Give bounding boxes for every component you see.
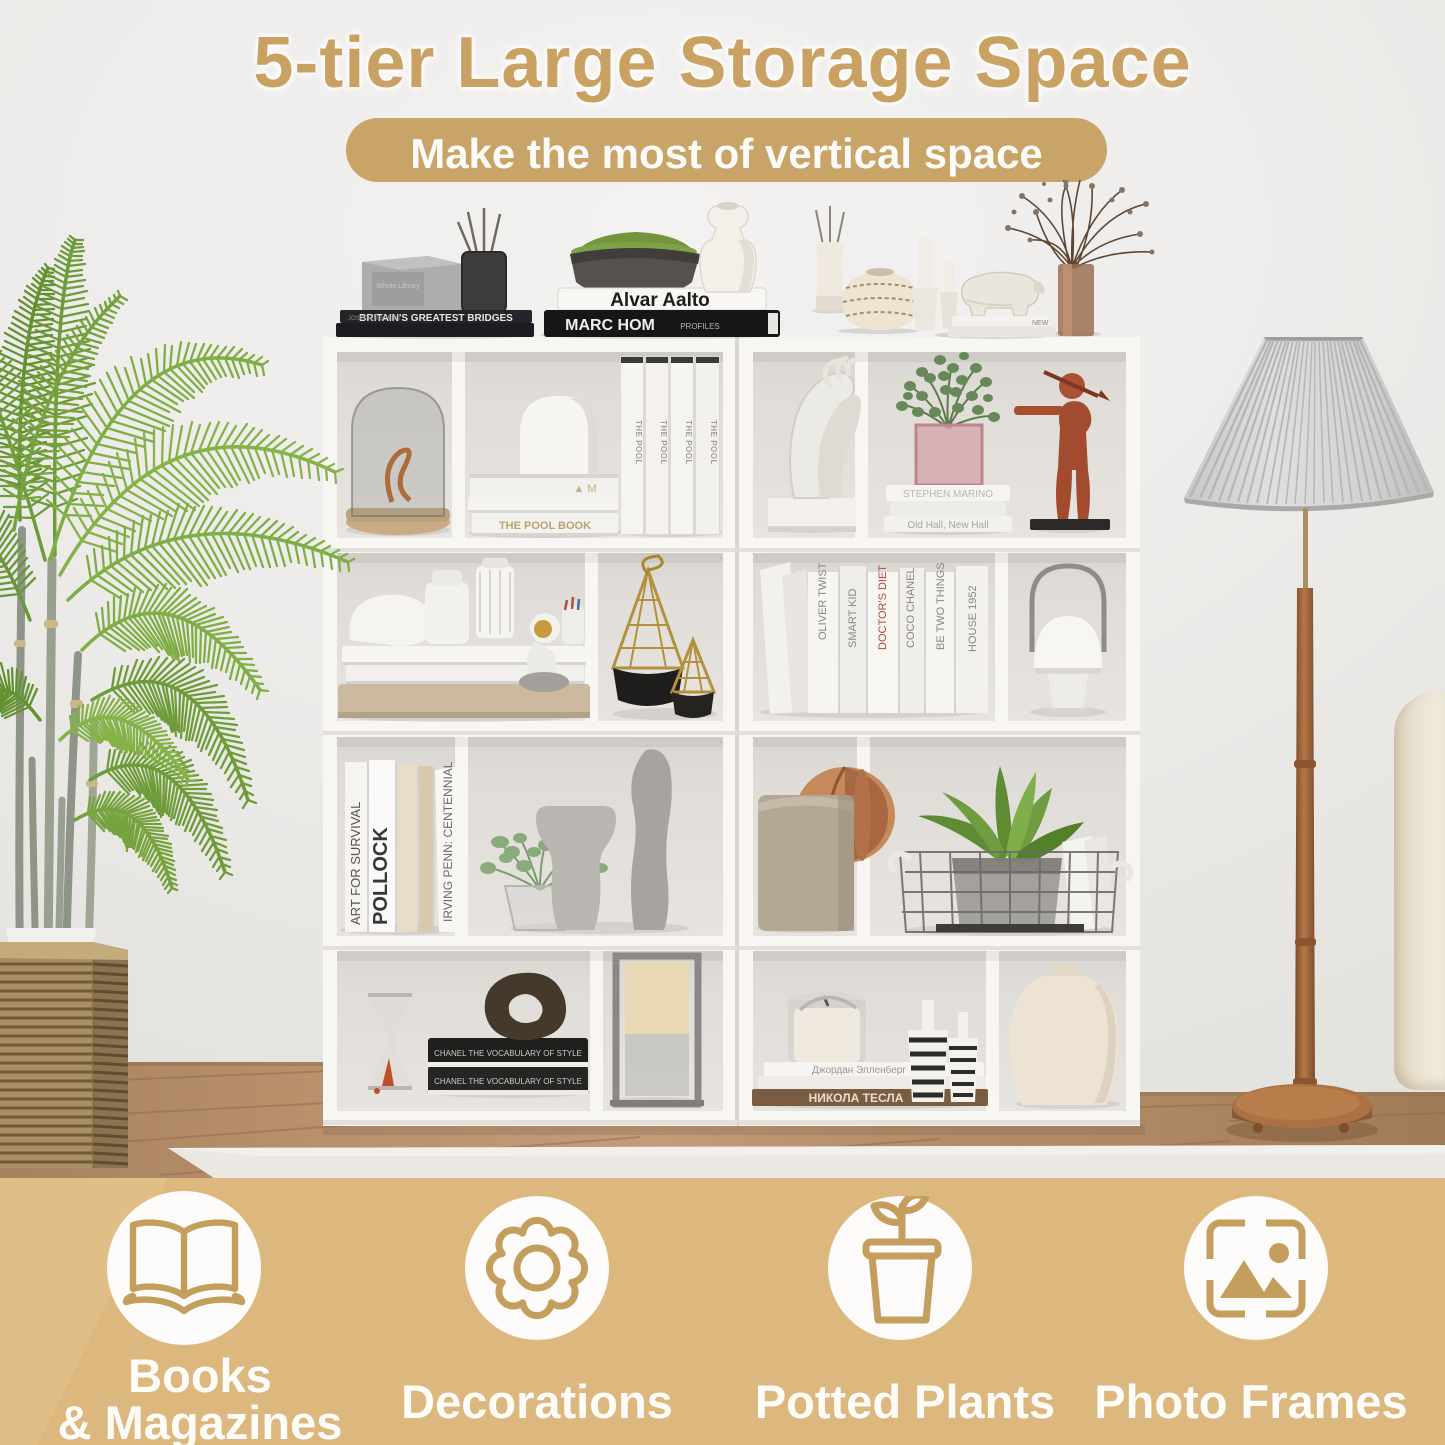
svg-text:THE POOL: THE POOL <box>634 420 643 465</box>
svg-text:BE TWO THINGS: BE TWO THINGS <box>935 562 947 650</box>
svg-text:CHANEL THE VOCABULARY OF STYLE: CHANEL THE VOCABULARY OF STYLE <box>434 1077 582 1086</box>
svg-text:DOCTOR'S DIET: DOCTOR'S DIET <box>877 565 889 650</box>
svg-text:MARC HOM: MARC HOM <box>565 317 655 334</box>
svg-text:COCO CHANEL: COCO CHANEL <box>905 567 917 648</box>
svg-text:NEW: NEW <box>1032 320 1049 327</box>
svg-text:▲ M: ▲ M <box>573 483 596 495</box>
svg-text:HOUSE 1952: HOUSE 1952 <box>967 585 979 652</box>
svg-text:PROFILES: PROFILES <box>680 322 720 331</box>
svg-text:THE POOL: THE POOL <box>709 420 718 465</box>
svg-text:Old Hall, New Hall: Old Hall, New Hall <box>907 520 988 531</box>
svg-text:IRVING PENN: CENTENNIAL: IRVING PENN: CENTENNIAL <box>441 761 455 922</box>
svg-text:CHANEL THE VOCABULARY OF STYLE: CHANEL THE VOCABULARY OF STYLE <box>434 1049 582 1058</box>
svg-text:OLIVER TWIST: OLIVER TWIST <box>817 562 829 640</box>
svg-text:SMART KID: SMART KID <box>847 588 859 648</box>
svg-text:THE POOL: THE POOL <box>684 420 693 465</box>
svg-text:Джордан Элленберг: Джордан Элленберг <box>812 1064 906 1076</box>
svg-text:THE POOL BOOK: THE POOL BOOK <box>499 520 591 532</box>
svg-text:НИКОЛА ТЕСЛА: НИКОЛА ТЕСЛА <box>809 1091 904 1105</box>
svg-text:STEPHEN MARINO: STEPHEN MARINO <box>903 489 993 500</box>
svg-text:Alvar Aalto: Alvar Aalto <box>610 290 710 311</box>
svg-text:THE POOL: THE POOL <box>659 420 668 465</box>
